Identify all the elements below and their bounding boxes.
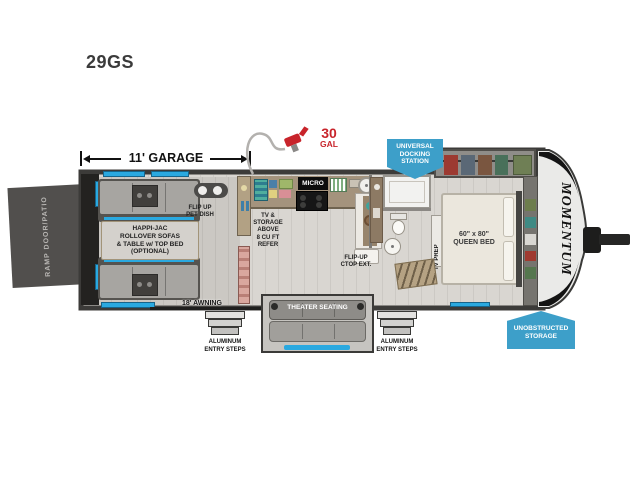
sofa-label-line: (OPTIONAL)	[131, 248, 169, 256]
sofa-label-line: ROLLOVER SOFAS	[120, 233, 180, 241]
fuel-hose	[247, 134, 285, 174]
bed-ladder	[238, 246, 250, 304]
counter-item	[279, 179, 293, 189]
hanging-clothes	[495, 155, 508, 175]
floorplan-canvas: 29GS RAMP DOOR/PATIO MOMENTUM	[0, 0, 640, 480]
counter-item	[269, 180, 277, 188]
hitch-coupler	[583, 227, 601, 253]
sofa-label-line: & TABLE w/ TOP BED	[117, 241, 184, 249]
pet-dish	[194, 183, 228, 198]
hitch-bar	[599, 234, 630, 245]
garage-window-top-2	[151, 171, 189, 177]
entry-steps-left	[205, 311, 245, 337]
cupholder-icon	[271, 303, 278, 310]
garage-window-top-1	[103, 171, 145, 177]
pillow	[503, 197, 514, 237]
garage-dimension: 11' GARAGE	[80, 150, 252, 168]
rear-wall	[81, 174, 99, 305]
counter-item	[269, 190, 277, 198]
toilet-tank	[390, 213, 407, 220]
bed-label-line: QUEEN BED	[453, 239, 495, 247]
theater-seating-label: THEATER SEATING	[281, 304, 354, 311]
theater-led-strip	[284, 345, 350, 350]
bed-label-line: 60" x 80"	[459, 231, 489, 239]
hanging-clothes	[444, 155, 458, 175]
counter-item	[279, 190, 291, 198]
toilet	[392, 220, 405, 235]
storage-bin	[525, 267, 536, 279]
garage-dimension-label: 11' GARAGE	[120, 151, 212, 165]
front-storage-column	[523, 176, 538, 306]
bath-sink	[384, 238, 401, 255]
refer-label: TV & STORAGE ABOVE 8 CU FT REFER	[244, 213, 292, 249]
table-mount-bottom	[132, 274, 158, 296]
bath-vanity	[370, 177, 383, 243]
bath-wall-mid	[383, 208, 431, 211]
fuel-pump-icon	[282, 125, 315, 154]
awning-label: 18' AWNING	[182, 300, 222, 307]
headboard	[516, 191, 522, 287]
storage-bin	[525, 199, 536, 211]
wardrobe	[434, 149, 536, 178]
hanging-clothes	[478, 155, 492, 175]
theater-sofa-seat	[269, 321, 366, 342]
brand-logo: MOMENTUM	[558, 181, 573, 276]
storage-bin	[513, 155, 532, 175]
bedroom-window-bottom	[450, 302, 490, 307]
entry-steps-left-label: ALUMINUM ENTRY STEPS	[186, 339, 264, 354]
entry-steps-right-label: ALUMINUM ENTRY STEPS	[358, 339, 436, 354]
dim-tick-left	[80, 151, 82, 166]
sofa-label-line: HAPPI-JAC	[132, 225, 167, 233]
hanging-clothes	[461, 155, 475, 175]
awning-bar	[150, 307, 268, 310]
dish-rack	[330, 178, 347, 192]
storage-bin	[525, 234, 536, 245]
pet-dish-label: FLIP UP PET DISH	[176, 205, 224, 219]
fuel-unit: GAL	[312, 140, 346, 149]
storage-bin	[525, 217, 536, 228]
pillow	[503, 241, 514, 281]
range-cooktop	[296, 191, 328, 211]
cupholder-icon	[357, 303, 364, 310]
garage-window-bottom	[101, 302, 155, 308]
dish-stack	[254, 179, 268, 201]
bedroom-steps	[394, 258, 437, 289]
happijac-table: HAPPI-JAC ROLLOVER SOFAS & TABLE w/ TOP …	[101, 221, 199, 260]
ctop-ext-label: FLIP-UP CTOP EXT.	[333, 255, 379, 269]
entry-steps-right	[377, 311, 417, 337]
rollover-sofa-bottom	[98, 257, 200, 300]
fuel-amount: 30	[312, 126, 346, 140]
storage-bin	[525, 251, 536, 261]
shower	[383, 175, 431, 209]
table-mount-top	[132, 185, 158, 207]
fuel-capacity: 30 GAL	[312, 126, 346, 149]
